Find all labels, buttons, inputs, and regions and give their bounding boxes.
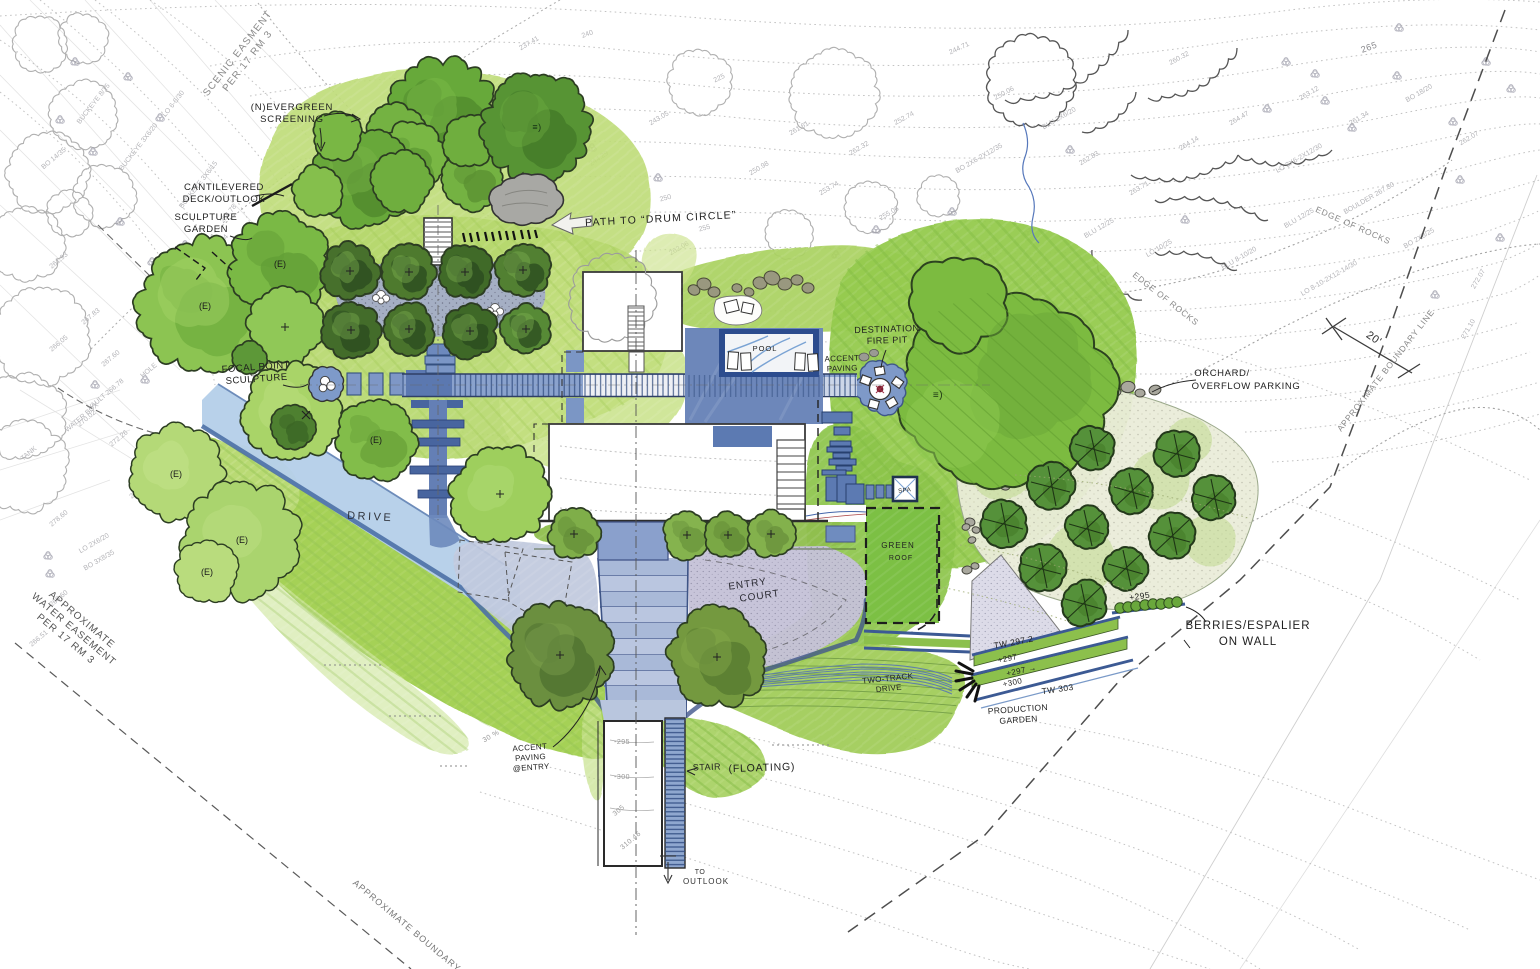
svg-text:OUTLOOK: OUTLOOK — [683, 877, 729, 886]
svg-text:-300: -300 — [614, 774, 630, 781]
svg-text:(E): (E) — [201, 567, 213, 577]
svg-text:(E): (E) — [170, 469, 182, 479]
svg-text:(E): (E) — [199, 301, 211, 311]
svg-text:FIRE PIT: FIRE PIT — [867, 335, 908, 346]
svg-text:(FLOATING): (FLOATING) — [728, 761, 795, 775]
svg-text:-295: -295 — [614, 739, 630, 746]
svg-text:BERRIES/ESPALIER: BERRIES/ESPALIER — [1185, 620, 1310, 632]
svg-text:(E): (E) — [236, 535, 248, 545]
svg-text:STAIR: STAIR — [693, 762, 722, 773]
svg-text:DECK/OUTLOOK: DECK/OUTLOOK — [183, 194, 266, 205]
svg-text:≡): ≡) — [532, 122, 541, 132]
svg-text:TO: TO — [695, 869, 706, 876]
svg-text:≡): ≡) — [933, 390, 943, 401]
svg-text:GARDEN: GARDEN — [184, 224, 228, 235]
svg-text:SCULPTURE: SCULPTURE — [175, 212, 238, 223]
svg-text:ROOF: ROOF — [889, 555, 913, 562]
svg-text:CANTILEVERED: CANTILEVERED — [184, 182, 264, 193]
svg-text:PAVING: PAVING — [827, 363, 858, 373]
svg-text:OVERFLOW PARKING: OVERFLOW PARKING — [1192, 381, 1301, 392]
svg-text:POOL: POOL — [753, 344, 778, 353]
svg-text:(E): (E) — [370, 435, 382, 445]
svg-text:(N)EVERGREEN: (N)EVERGREEN — [251, 102, 333, 113]
svg-text:ORCHARD/: ORCHARD/ — [1194, 368, 1249, 379]
svg-text:GREEN: GREEN — [881, 541, 914, 550]
svg-text:(E): (E) — [274, 259, 286, 269]
svg-text:ACCENT: ACCENT — [824, 353, 859, 363]
svg-text:DRIVE: DRIVE — [347, 510, 394, 524]
svg-text:ON WALL: ON WALL — [1219, 636, 1277, 648]
svg-text:SCREENING: SCREENING — [260, 114, 324, 125]
